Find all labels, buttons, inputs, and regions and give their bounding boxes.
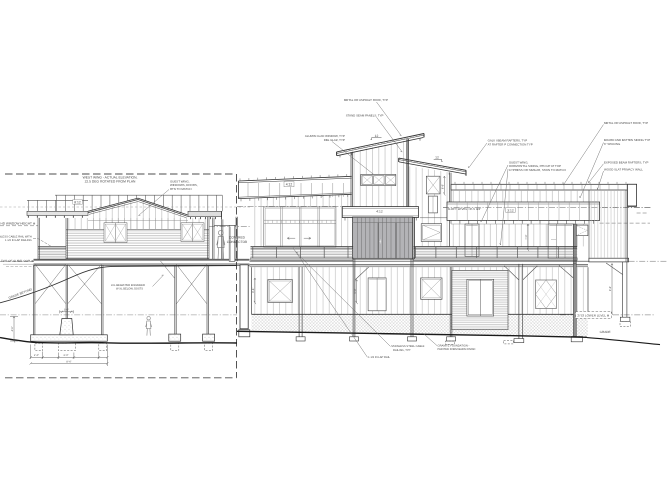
svg-text:9'-6": 9'-6" [252,288,255,293]
svg-text:CONNECTOR: CONNECTOR [227,240,248,244]
svg-text:AT RAFTER P CONNECTION TYP: AT RAFTER P CONNECTION TYP [488,142,533,146]
svg-text:8:12: 8:12 [74,200,81,204]
svg-text:STAND SEAM PANELS, TYP: STAND SEAM PANELS, TYP [346,114,384,118]
svg-text:22.5 DEG ROTATED FROM PLAN: 22.5 DEG ROTATED FROM PLAN [85,180,136,184]
svg-text:HD WINDOW HEIGHT ⊕: HD WINDOW HEIGHT ⊕ [1,222,36,226]
svg-text:GRANITE FOUNDATION -: GRANITE FOUNDATION - [438,344,470,347]
svg-text:W XL BELOW JOISTS: W XL BELOW JOISTS [116,288,143,291]
svg-text:EXPOSED BEAM RAFTERS, TYP: EXPOSED BEAM RAFTERS, TYP [604,160,649,164]
svg-text:METAL OR ASPHALT ROOF, TYP: METAL OR ASPHALT ROOF, TYP [604,121,648,125]
svg-text:8'-6": 8'-6" [66,360,71,363]
svg-text:2'-0": 2'-0" [34,354,39,357]
svg-text:6" SPACING: 6" SPACING [604,142,621,146]
svg-text:WOOD SLAT PRIVACY WALL: WOOD SLAT PRIVACY WALL [604,168,643,172]
svg-text:9'-6": 9'-6" [354,288,357,293]
svg-text:12: 12 [375,134,379,138]
svg-text:PAINTED FORM BARN FINISH: PAINTED FORM BARN FINISH [438,348,476,351]
svg-text:GRADE: GRADE [600,330,611,334]
svg-text:9'-6": 9'-6" [609,286,612,291]
svg-text:STAINLESS STEEL CABLE: STAINLESS STEEL CABLE [391,345,425,348]
svg-text:4'-0": 4'-0" [11,326,14,331]
svg-text:ℓLOFT LEVEL +9'-5 3/4": ℓLOFT LEVEL +9'-5 3/4" [448,207,481,211]
svg-text:2753 LOWER LEVEL ⊕: 2753 LOWER LEVEL ⊕ [577,314,609,318]
svg-text:12: 12 [435,155,439,159]
svg-text:4:12: 4:12 [376,210,383,214]
svg-text:1 1/2 IN LAP RAILING: 1 1/2 IN LAP RAILING [5,239,32,242]
svg-text:6'-6": 6'-6" [442,184,445,189]
svg-text:3'-0": 3'-0" [64,309,69,312]
svg-text:DBL GLAZ, TYP: DBL GLAZ, TYP [324,138,345,142]
svg-text:1 1/2 IN LAP RAIL: 1 1/2 IN LAP RAIL [368,356,390,359]
svg-text:7'-0": 7'-0" [525,234,528,239]
svg-text:TOP OF SUBFLOOR ⊕: TOP OF SUBFLOOR ⊕ [1,259,34,263]
svg-text:METAL OR ASPHALT ROOF, TYP: METAL OR ASPHALT ROOF, TYP [344,98,388,102]
svg-text:CYPRESS OR SIMILAR, STAIN TO M: CYPRESS OR SIMILAR, STAIN TO MATCH [509,168,566,172]
svg-text:RAILING, TYP: RAILING, TYP [393,349,411,352]
svg-text:4:12: 4:12 [286,183,293,187]
svg-text:3:12: 3:12 [507,208,514,212]
svg-text:3'-0": 3'-0" [63,354,68,357]
svg-text:RTN TO MATCH: RTN TO MATCH [170,187,191,191]
